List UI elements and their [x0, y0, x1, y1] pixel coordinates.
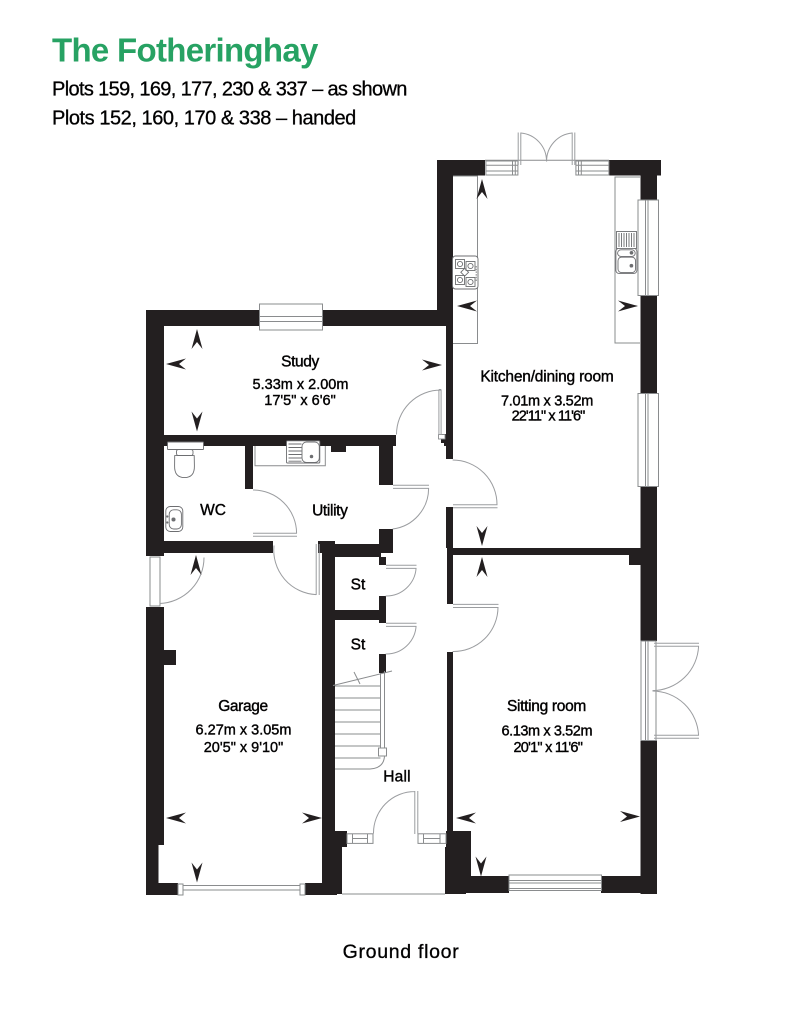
svg-text:Utility: Utility	[312, 502, 348, 519]
svg-text:5.33m x 2.00m: 5.33m x 2.00m	[253, 377, 349, 393]
svg-text:20'1" x 11'6": 20'1" x 11'6"	[513, 740, 582, 756]
svg-text:22'11" x 11'6": 22'11" x 11'6"	[512, 409, 586, 425]
svg-text:17'5" x 6'6": 17'5" x 6'6"	[264, 393, 335, 409]
svg-text:WC: WC	[200, 502, 226, 519]
svg-text:20'5" x 9'10": 20'5" x 9'10"	[204, 740, 284, 756]
svg-text:6.13m x 3.52m: 6.13m x 3.52m	[501, 723, 592, 739]
svg-text:Plots 152, 160, 170 & 338 – ha: Plots 152, 160, 170 & 338 – handed	[52, 108, 356, 130]
svg-text:Kitchen/dining room: Kitchen/dining room	[480, 369, 613, 386]
svg-text:Garage: Garage	[218, 698, 268, 715]
svg-text:St: St	[351, 636, 366, 653]
svg-text:Plots 159, 169, 177, 230 & 337: Plots 159, 169, 177, 230 & 337 – as show…	[52, 79, 407, 101]
svg-text:Study: Study	[281, 353, 319, 370]
svg-text:6.27m x 3.05m: 6.27m x 3.05m	[196, 723, 292, 739]
svg-text:The Fotheringhay: The Fotheringhay	[52, 32, 319, 69]
svg-text:Sitting room: Sitting room	[507, 698, 586, 715]
svg-text:Ground floor: Ground floor	[343, 941, 460, 963]
svg-text:St: St	[351, 577, 366, 594]
svg-text:7.01m x 3.52m: 7.01m x 3.52m	[501, 394, 593, 410]
svg-text:Hall: Hall	[383, 769, 411, 786]
